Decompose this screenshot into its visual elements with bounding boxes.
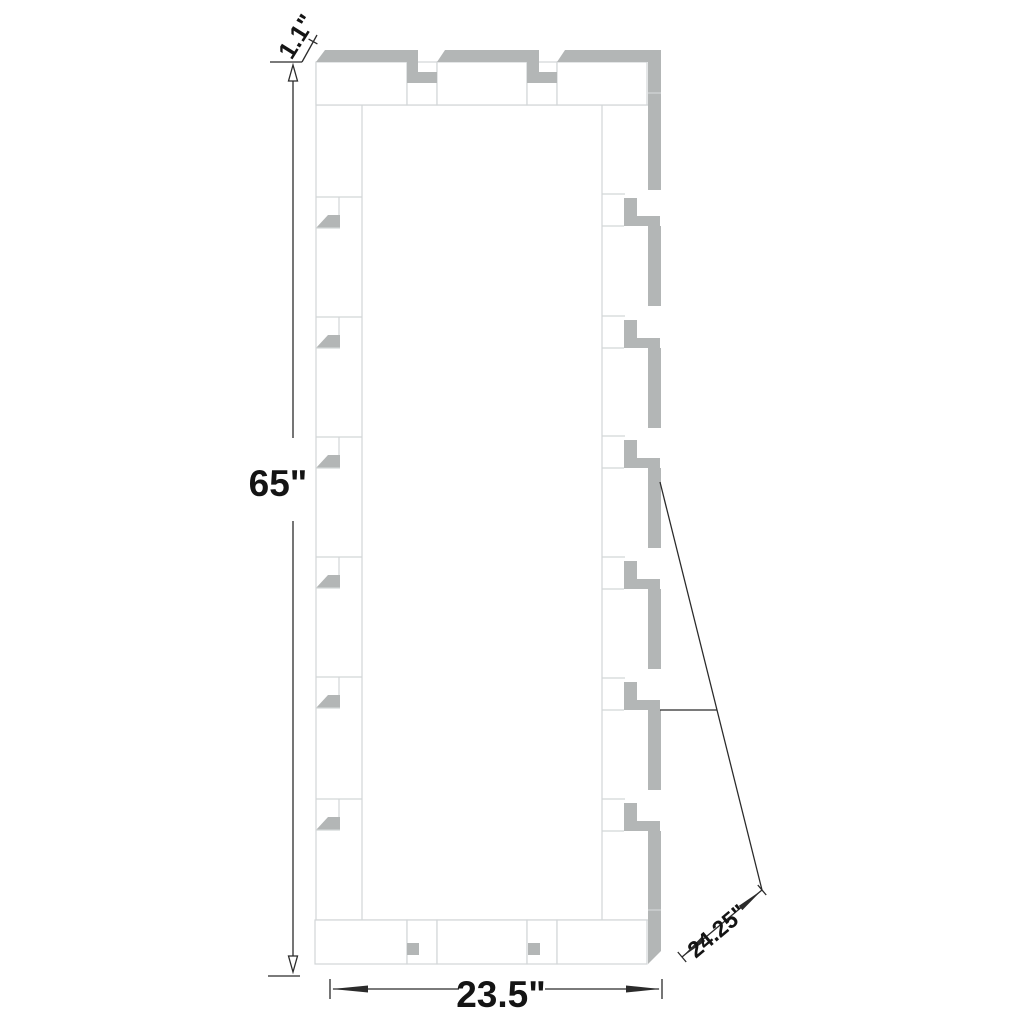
left-joint-tab [316,557,362,588]
right-stile [602,194,661,964]
arrow-up [289,65,298,81]
right-joint-step [602,316,661,428]
thickness-dimension: 1.1" [270,10,321,64]
left-joint-tab [316,677,362,708]
arrow-right [626,986,660,993]
left-joint-tab [316,437,362,468]
width-dimension: 23.5" [330,974,662,1015]
bottom-tab [528,943,540,955]
arrow-down [289,956,298,972]
panel-length-dimension: 24.25" [660,482,766,963]
right-bar-beveled-end [648,831,661,964]
left-stile [316,197,362,830]
right-joint-step [602,436,661,548]
left-joint-tab [316,197,362,228]
height-dimension-label: 65" [249,463,308,504]
bottom-rail [315,920,647,964]
left-joint-tab [316,799,362,830]
dimension-diagram: 1.1" 65" 23.5" 24.25" [0,0,1024,1024]
bottom-tab [407,943,419,955]
leader-line [660,482,762,890]
thickness-dimension-label: 1.1" [273,10,321,64]
right-joint-step [602,557,661,669]
width-dimension-label: 23.5" [456,974,546,1015]
arrow-upper-right [739,890,762,910]
height-dimension: 65" [249,65,308,976]
arrow-left [332,986,368,993]
right-joint-step [602,194,661,306]
left-joint-tab [316,317,362,348]
frame-opening [316,62,648,964]
right-joint-step [602,678,661,790]
top-rail [316,50,661,190]
mirror-frame-drawing [315,50,661,964]
frame-dimension-drawing: 1.1" 65" 23.5" 24.25" [0,0,1024,1024]
panel-length-dimension-label: 24.25" [682,899,751,963]
